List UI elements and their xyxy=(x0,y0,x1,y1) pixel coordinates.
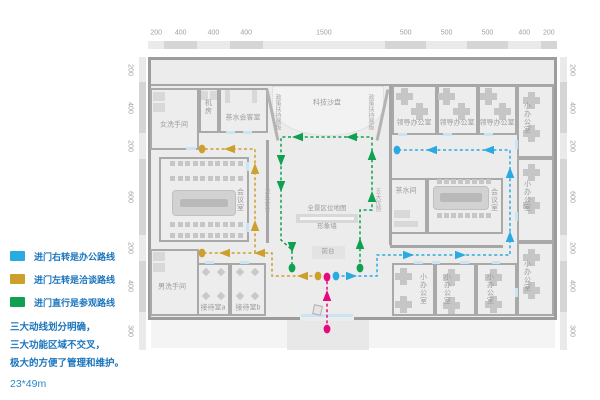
furniture-bar xyxy=(225,90,230,103)
legend-note-2: 三大功能区域不交叉， xyxy=(10,337,160,355)
furniture-bar xyxy=(394,210,410,218)
chair xyxy=(238,233,243,238)
ruler-segment xyxy=(197,41,230,49)
chair xyxy=(230,233,235,238)
chair xyxy=(223,176,228,181)
ruler-segment xyxy=(139,82,146,133)
ruler-label: 1500 xyxy=(316,30,332,37)
inner-wall xyxy=(390,245,503,248)
ruler-label: 400 xyxy=(127,102,134,114)
door-opening xyxy=(243,131,252,134)
door-opening xyxy=(492,261,500,264)
ruler-label: 300 xyxy=(569,325,576,337)
chair xyxy=(200,176,205,181)
ruler-label: 200 xyxy=(127,140,134,152)
chair xyxy=(178,161,183,166)
door-opening xyxy=(515,212,518,221)
chair xyxy=(178,176,183,181)
chair xyxy=(200,222,205,227)
ruler-label: 400 xyxy=(175,30,187,37)
plan-scale: 23*49m xyxy=(10,378,160,390)
chair xyxy=(444,213,449,218)
panorama-map-label: 全景区位地图 xyxy=(308,206,347,213)
chair xyxy=(230,176,235,181)
room-women-restroom-label: 女洗手间 xyxy=(160,122,188,129)
entrance-door xyxy=(301,314,353,317)
room-conference-right-label: 会议室 xyxy=(491,188,498,212)
door-opening xyxy=(226,131,235,134)
legend-item-office: 进门右转是办公路线 xyxy=(10,250,160,262)
ruler-label: 500 xyxy=(400,30,412,37)
chair xyxy=(193,222,198,227)
chair xyxy=(486,179,491,184)
chair xyxy=(238,176,243,181)
ruler-label: 400 xyxy=(240,30,252,37)
ruler-segment xyxy=(139,57,146,82)
tech-sandtable-label: 科技沙盘 xyxy=(313,100,341,107)
ruler-label: 200 xyxy=(569,64,576,76)
legend-note-1: 三大动线划分明确， xyxy=(10,319,160,337)
door-opening xyxy=(432,261,440,264)
chair xyxy=(465,213,470,218)
chair xyxy=(215,176,220,181)
chair xyxy=(178,233,183,238)
chair xyxy=(178,222,183,227)
legend: 进门右转是办公路线 进门左转是洽谈路线 进门直行是参观路线 三大动线划分明确， … xyxy=(10,250,160,390)
chair xyxy=(479,213,484,218)
room-small-office-b1-label: 小办公室 xyxy=(420,273,427,305)
door-opening xyxy=(246,223,249,232)
room-conference-left-label: 会议室 xyxy=(237,188,244,212)
room-men-restroom-label: 男洗手间 xyxy=(158,284,186,291)
door-opening xyxy=(414,261,423,264)
ruler-segment xyxy=(148,41,164,49)
door-opening xyxy=(484,133,493,136)
office-desk xyxy=(411,103,428,120)
chair xyxy=(223,233,228,238)
chair xyxy=(465,179,470,184)
room-reception-a-label: 接待室a xyxy=(201,305,226,312)
chair xyxy=(238,222,243,227)
ruler-segment xyxy=(560,57,567,82)
furniture-bar xyxy=(153,103,165,112)
ruler-segment xyxy=(139,133,146,158)
ruler-segment xyxy=(560,235,567,260)
chair xyxy=(185,176,190,181)
chair xyxy=(185,233,190,238)
ruler-label: 400 xyxy=(569,102,576,114)
room-small-office-r2-label: 小办公室 xyxy=(524,180,531,212)
office-desk xyxy=(395,268,412,285)
chair xyxy=(215,233,220,238)
policy-panel-left-label: 政策扶持展板 xyxy=(274,94,280,130)
room-small-office-b3-label: 小办公室 xyxy=(487,273,494,305)
room-pantry-label: 茶水间 xyxy=(396,188,417,195)
office-route-swatch xyxy=(10,251,25,261)
chair xyxy=(230,161,235,166)
policy-panel-right-label: 政策扶持展板 xyxy=(367,94,373,130)
chair xyxy=(479,179,484,184)
room-leader-office-1-label: 领导办公室 xyxy=(397,120,432,127)
chair xyxy=(451,179,456,184)
chair xyxy=(472,213,477,218)
door-opening xyxy=(240,261,249,264)
ruler-label: 200 xyxy=(127,64,134,76)
image-wall-label: 形象墙 xyxy=(317,224,337,231)
negotiation-route-swatch xyxy=(10,274,25,284)
chair xyxy=(215,222,220,227)
visit-route-swatch xyxy=(10,297,25,307)
chair xyxy=(458,213,463,218)
chair xyxy=(208,176,213,181)
legend-item-label: 进门右转是办公路线 xyxy=(34,250,115,263)
chair xyxy=(208,233,213,238)
office-desk xyxy=(494,103,511,120)
chair xyxy=(193,161,198,166)
door-opening xyxy=(515,288,518,297)
door-opening xyxy=(186,147,196,150)
ruler-label: 200 xyxy=(150,30,162,37)
door-opening xyxy=(398,133,407,136)
five-advantages-label: 五大优势 xyxy=(374,188,380,212)
ruler-label: 400 xyxy=(208,30,220,37)
ruler-segment xyxy=(541,41,557,49)
legend-item-label: 进门直行是参观路线 xyxy=(34,296,115,309)
chair xyxy=(437,179,442,184)
ruler-segment xyxy=(385,41,426,49)
chair xyxy=(458,179,463,184)
chair xyxy=(185,222,190,227)
door-opening xyxy=(205,261,214,264)
front-desk-label: 前台 xyxy=(322,249,335,256)
chair xyxy=(223,222,228,227)
ruler-segment xyxy=(230,41,263,49)
chair xyxy=(444,179,449,184)
door-opening xyxy=(460,261,469,264)
chair xyxy=(215,161,220,166)
chair xyxy=(230,222,235,227)
conference-table-inner xyxy=(440,193,482,202)
conference-table-inner xyxy=(180,199,228,207)
legend-note-3: 极大的方便了管理和维护。 xyxy=(10,355,160,373)
door-opening xyxy=(246,162,249,171)
furniture-bar xyxy=(300,217,354,220)
chair xyxy=(193,176,198,181)
legend-item-visit: 进门直行是参观路线 xyxy=(10,296,160,308)
room-tea-meeting-label: 茶水会客室 xyxy=(226,115,261,122)
room-small-office-r3-label: 小办公室 xyxy=(524,260,531,292)
chair xyxy=(170,161,175,166)
ruler-segment xyxy=(139,159,146,235)
chair xyxy=(486,213,491,218)
chair xyxy=(200,233,205,238)
ruler-segment xyxy=(508,41,541,49)
ruler-label: 600 xyxy=(569,191,576,203)
chair xyxy=(170,176,175,181)
room-leader-office-2-label: 领导办公室 xyxy=(440,120,475,127)
room-reception-b-label: 接待室b xyxy=(236,305,261,312)
inner-wall xyxy=(150,84,555,86)
ruler-label: 400 xyxy=(569,280,576,292)
leading-enterprise-label: 龙头企业 xyxy=(263,188,269,212)
chair xyxy=(238,161,243,166)
ruler-label: 500 xyxy=(441,30,453,37)
ruler-segment xyxy=(426,41,467,49)
room-small-office-b2-label: 小办公室 xyxy=(444,273,451,305)
chair xyxy=(200,161,205,166)
office-desk xyxy=(523,164,540,181)
door-opening xyxy=(515,140,518,149)
ruler-segment xyxy=(560,159,567,235)
chair xyxy=(193,233,198,238)
ruler-label: 200 xyxy=(569,140,576,152)
chair xyxy=(437,213,442,218)
chair xyxy=(208,222,213,227)
chair xyxy=(223,161,228,166)
office-desk xyxy=(395,296,412,313)
ruler-segment xyxy=(164,41,197,49)
chair xyxy=(170,233,175,238)
inner-wall xyxy=(389,85,392,245)
legend-item-label: 进门左转是洽谈路线 xyxy=(34,273,115,286)
chair xyxy=(208,161,213,166)
furniture-bar xyxy=(252,90,257,103)
ruler-label: 400 xyxy=(518,30,530,37)
ruler-segment xyxy=(560,312,567,350)
room-machine-label: 机房 xyxy=(205,99,212,115)
ruler-segment xyxy=(560,133,567,158)
ruler-label: 200 xyxy=(569,242,576,254)
chair xyxy=(472,179,477,184)
office-desk xyxy=(453,103,470,120)
legend-item-negotiation: 进门左转是洽谈路线 xyxy=(10,273,160,285)
furniture-bar xyxy=(394,221,418,227)
ruler-segment xyxy=(560,261,567,312)
ruler-label: 200 xyxy=(543,30,555,37)
floor-plan-page: 2004004004001500500500500400200200200400… xyxy=(0,0,600,400)
room-small-office-r1-label: 小办公室 xyxy=(524,102,531,134)
ruler-label: 500 xyxy=(482,30,494,37)
ruler-segment xyxy=(467,41,508,49)
ruler-label: 600 xyxy=(127,191,134,203)
chair xyxy=(451,213,456,218)
ruler-segment xyxy=(263,41,386,49)
room-leader-office-3-label: 领导办公室 xyxy=(480,120,515,127)
furniture-bar xyxy=(153,92,165,101)
chair xyxy=(170,222,175,227)
door-opening xyxy=(443,133,452,136)
entrance-porch xyxy=(287,320,369,350)
ruler-segment xyxy=(560,82,567,133)
chair xyxy=(185,161,190,166)
